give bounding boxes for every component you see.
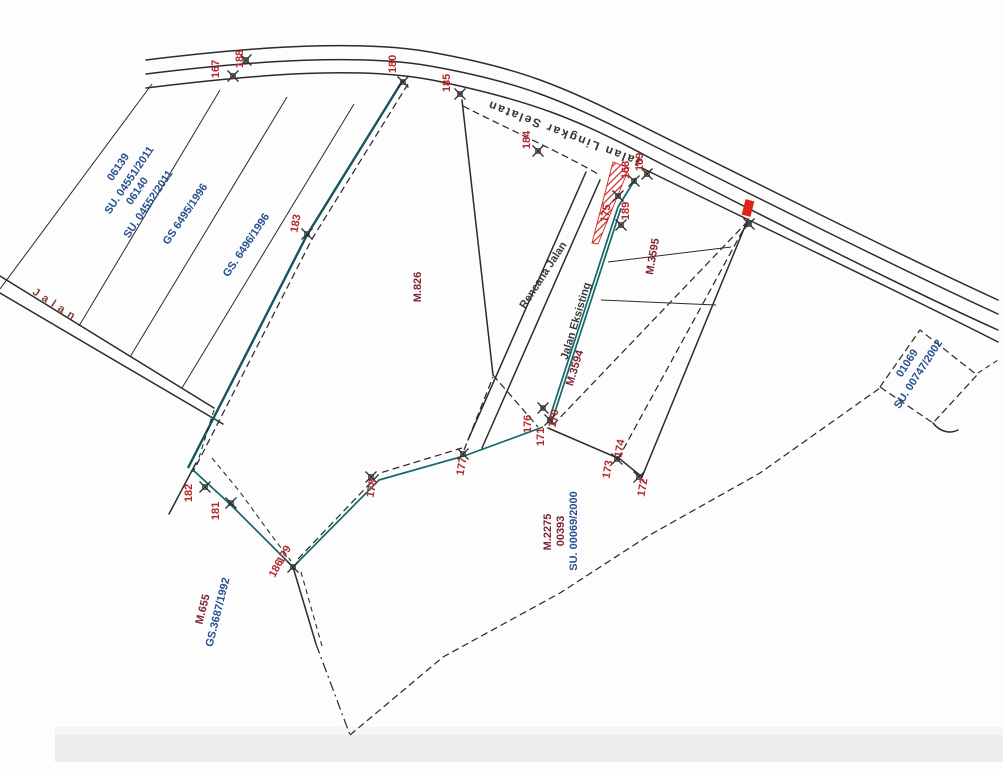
point-label: 182 <box>183 484 195 502</box>
parcel-label: 00393 <box>555 516 567 547</box>
point-label: 171 <box>535 428 547 446</box>
survey-mark-icon <box>200 482 211 493</box>
parcel-label: SU. 00069/2000 <box>568 491 580 571</box>
road-label: Jalan <box>30 286 81 325</box>
survey-mark-icon <box>288 562 299 573</box>
point-label: 183 <box>289 213 304 233</box>
scan-artifact-band <box>55 727 1003 762</box>
point-label: 168 <box>620 161 632 179</box>
scanned-survey-plan: 06139 SU. 04551/2011 06140 SU. 04552/201… <box>0 0 1003 769</box>
survey-mark-icon <box>538 403 549 414</box>
point-label: 181 <box>210 502 222 520</box>
road-label: Jalan Lingkar Selatan <box>485 98 644 170</box>
point-label: 180 <box>387 55 399 73</box>
parcel-label: GS. 6496/1996 <box>221 211 272 279</box>
parcel-label: M.826 <box>412 272 424 303</box>
parcel-label: M.3595 <box>644 237 662 275</box>
road-labels: Jalan Lingkar Selatan Jalan Rencana Jala… <box>30 98 644 362</box>
point-label: 185 <box>441 74 453 92</box>
point-label: 176 <box>522 415 534 433</box>
point-label: 173 <box>601 459 616 479</box>
point-label: 169 <box>634 153 646 171</box>
point-label: 174 <box>613 438 628 459</box>
point-label: 189 <box>620 202 632 220</box>
survey-mark-icon <box>226 498 237 509</box>
cadastral-map: 06139 SU. 04551/2011 06140 SU. 04552/201… <box>0 0 1003 769</box>
survey-mark-icon <box>455 89 466 100</box>
red-monument-marker <box>742 199 755 217</box>
survey-mark-icon <box>533 146 544 157</box>
m826-east-boundary <box>462 100 598 450</box>
parcel-label: M.2275 <box>542 514 554 551</box>
point-label: 175 <box>599 203 614 223</box>
survey-mark-icon <box>228 71 239 82</box>
survey-mark-icons <box>200 55 755 573</box>
survey-mark-icon <box>302 229 313 240</box>
point-label: 188 <box>234 50 246 68</box>
road-label: Rencana Jalan <box>517 240 569 311</box>
main-boundary-lines <box>188 80 408 472</box>
point-label: 172 <box>636 477 651 497</box>
parcel-labels: 06139 SU. 04551/2011 06140 SU. 04552/201… <box>102 144 945 648</box>
point-label: 170 <box>547 408 562 428</box>
point-label: 167 <box>210 60 222 78</box>
point-label: 184 <box>521 130 533 149</box>
point-label: 178 <box>365 478 380 498</box>
survey-mark-icon <box>398 77 409 88</box>
m2275-boundary <box>293 388 880 735</box>
point-label: 177 <box>455 456 470 476</box>
